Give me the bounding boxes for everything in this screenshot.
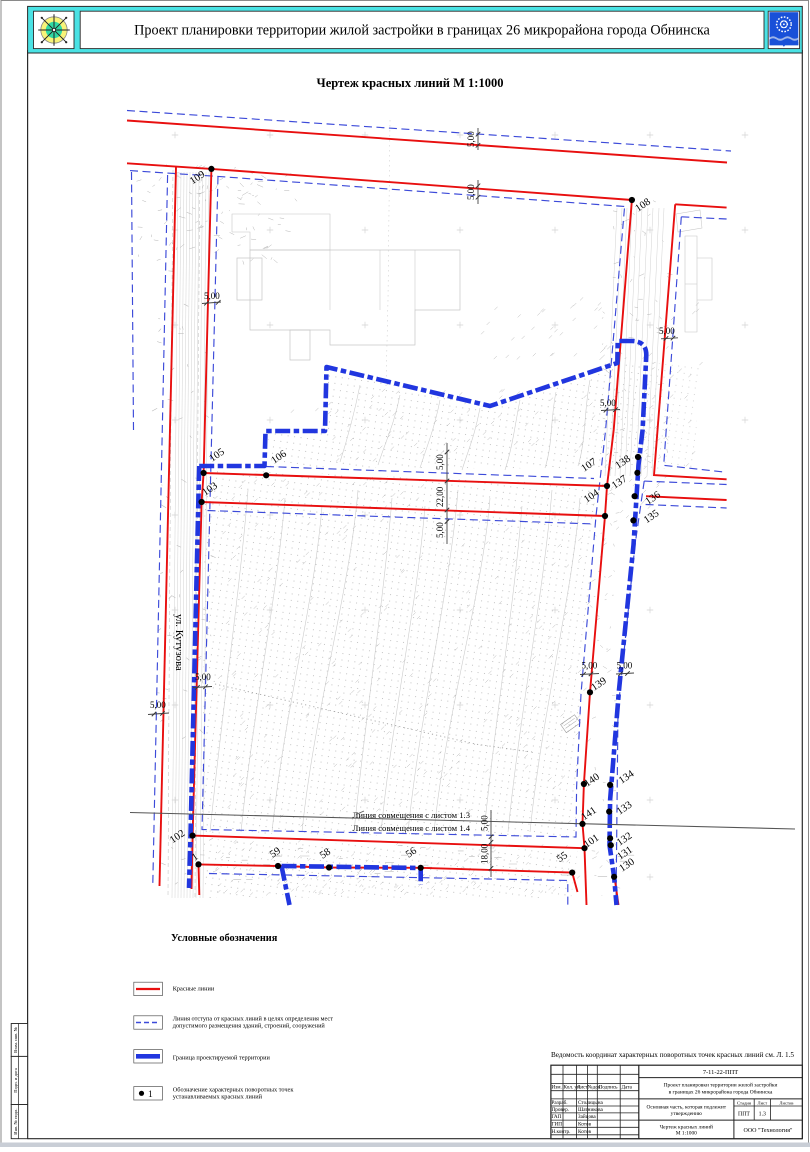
svg-text:5,00: 5,00	[150, 700, 166, 710]
svg-text:5,00: 5,00	[582, 661, 598, 671]
svg-text:5,00: 5,00	[204, 291, 220, 301]
svg-text:Линия совмещения с листом 1.4: Линия совмещения с листом 1.4	[352, 823, 470, 833]
svg-text:ГАП: ГАП	[552, 1114, 562, 1120]
svg-text:Чертеж красных линий М 1:1000: Чертеж красных линий М 1:1000	[317, 76, 504, 90]
svg-text:5,00: 5,00	[600, 398, 616, 408]
svg-text:Котов: Котов	[578, 1129, 592, 1135]
svg-text:Шатникова: Шатникова	[578, 1107, 603, 1113]
svg-text:5,00: 5,00	[480, 815, 490, 831]
svg-text:ООО "Технология": ООО "Технология"	[744, 1128, 794, 1134]
svg-text:5,00: 5,00	[435, 522, 445, 538]
svg-text:7-11-22-ППТ: 7-11-22-ППТ	[703, 1069, 738, 1076]
svg-text:Подп. и дата: Подп. и дата	[13, 1068, 18, 1093]
svg-text:Лист: Лист	[577, 1085, 589, 1091]
svg-text:5,00: 5,00	[617, 661, 633, 671]
svg-text:ППТ: ППТ	[738, 1112, 750, 1118]
svg-text:Котов: Котов	[578, 1121, 592, 1127]
svg-text:Проект планировки территории ж: Проект планировки территории жилой застр…	[134, 23, 710, 39]
svg-text:5,00: 5,00	[466, 131, 476, 147]
svg-text:Проект планировки территории ж: Проект планировки территории жилой застр…	[664, 1082, 778, 1089]
svg-text:ул. Кутузова: ул. Кутузова	[173, 614, 185, 671]
svg-text:Разраб.: Разраб.	[552, 1099, 568, 1106]
svg-text:Линия совмещения с листом 1.3: Линия совмещения с листом 1.3	[352, 810, 470, 820]
svg-text:1: 1	[148, 1090, 153, 1100]
svg-text:22,00: 22,00	[435, 486, 445, 507]
svg-text:5,00: 5,00	[466, 184, 476, 200]
svg-text:Обозначение характерных поворо: Обозначение характерных поворотных точек	[173, 1087, 295, 1094]
svg-text:Линия отступа от красных линий: Линия отступа от красных линий в целях о…	[173, 1016, 334, 1023]
svg-text:Инв. № подл.: Инв. № подл.	[13, 1109, 18, 1135]
svg-text:Стадия: Стадия	[737, 1100, 752, 1105]
svg-text:утверждению: утверждению	[671, 1111, 702, 1117]
svg-text:Провер.: Провер.	[552, 1107, 570, 1113]
svg-text:Зайцова: Зайцова	[578, 1113, 596, 1120]
svg-text:Основная часть, которая подлеж: Основная часть, которая подлежит	[646, 1105, 726, 1111]
svg-text:М 1:1000: М 1:1000	[676, 1131, 697, 1137]
svg-text:Изм.: Изм.	[552, 1085, 562, 1091]
svg-text:ГИП: ГИП	[552, 1121, 563, 1127]
svg-text:Н.контр.: Н.контр.	[552, 1129, 571, 1135]
svg-text:Листов: Листов	[779, 1100, 794, 1105]
svg-text:устанавливаемых красных линий: устанавливаемых красных линий	[173, 1094, 263, 1101]
svg-text:Чертеж красных линий: Чертеж красных линий	[660, 1123, 713, 1130]
svg-text:5,00: 5,00	[659, 326, 675, 336]
svg-text:допустимого размещения зданий,: допустимого размещения зданий, строений,…	[173, 1023, 326, 1030]
svg-text:Столицына: Столицына	[578, 1100, 604, 1106]
svg-text:Граница проектируемой территор: Граница проектируемой территории	[173, 1054, 271, 1061]
svg-text:Дата: Дата	[622, 1085, 633, 1091]
svg-text:5,00: 5,00	[195, 672, 211, 682]
svg-text:Лист: Лист	[757, 1100, 767, 1105]
svg-text:1.3: 1.3	[759, 1112, 766, 1118]
svg-text:5,00: 5,00	[435, 454, 445, 470]
svg-text:Подпись: Подпись	[599, 1085, 619, 1091]
svg-text:Взам. инв. №: Взам. инв. №	[13, 1026, 18, 1053]
svg-text:в границах 26 микрорайона горо: в границах 26 микрорайона города Обнинск…	[669, 1089, 773, 1096]
svg-text:18,00: 18,00	[480, 843, 490, 864]
svg-text:Красные линии: Красные линии	[173, 986, 215, 993]
svg-text:Ведомость координат характерны: Ведомость координат характерных поворотн…	[551, 1051, 794, 1059]
svg-text:Условные обозначения: Условные обозначения	[171, 933, 278, 944]
